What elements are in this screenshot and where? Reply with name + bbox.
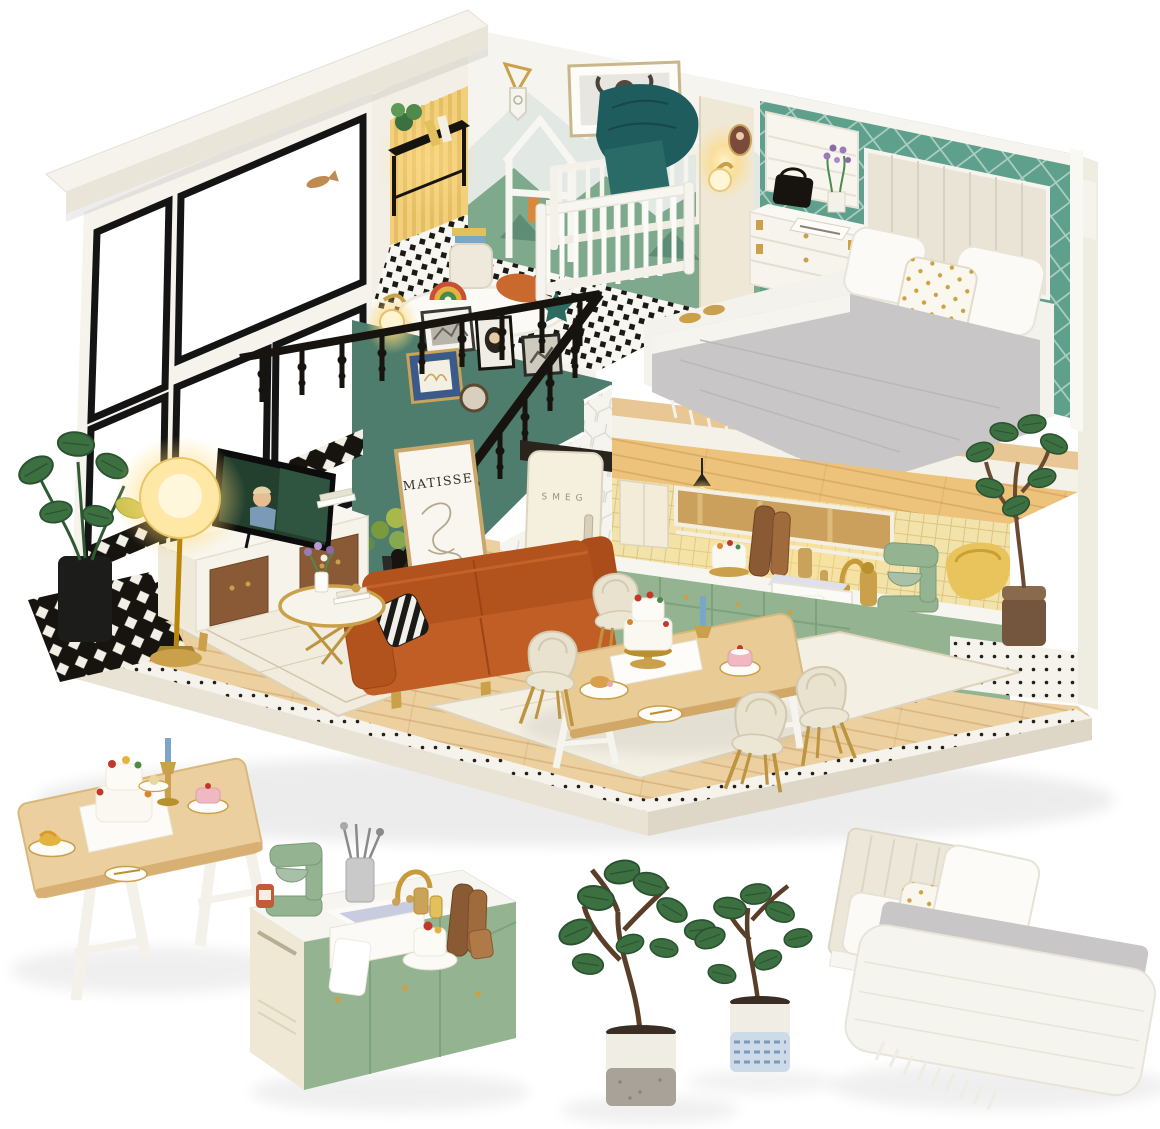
window-pane — [91, 201, 169, 419]
upper-cabinet — [620, 480, 668, 548]
gold-cup — [352, 584, 361, 593]
miniature-fig-plants — [555, 858, 838, 1124]
miniature-dining-table — [10, 738, 290, 1000]
miniature-kitchen-unit — [250, 822, 530, 1112]
dollhouse: MATISSE SMEG — [14, 10, 1115, 846]
mini-towel — [328, 938, 371, 996]
oil-jar — [798, 548, 812, 578]
cutting-boards — [748, 505, 790, 577]
mini-stand-mixer — [256, 842, 323, 916]
portrait-frame — [476, 317, 513, 369]
round-frame — [461, 385, 487, 411]
gold-grinder — [860, 570, 877, 606]
miniature-bed — [825, 827, 1160, 1110]
right-side-wall — [1070, 148, 1098, 710]
dollhouse-product-photo: MATISSE SMEG — [0, 0, 1160, 1129]
fridge-brand: SMEG — [541, 492, 587, 504]
blue-frame — [408, 350, 463, 403]
black-radio — [772, 174, 814, 209]
blanket-basket — [450, 244, 492, 288]
toy-books — [452, 228, 486, 243]
fig-plant-left — [555, 858, 716, 1106]
scene-canvas: MATISSE SMEG — [0, 0, 1160, 1129]
fig-plant-right — [692, 882, 813, 1072]
counter-cake-stand — [709, 540, 749, 577]
corner-trim — [1070, 148, 1083, 432]
